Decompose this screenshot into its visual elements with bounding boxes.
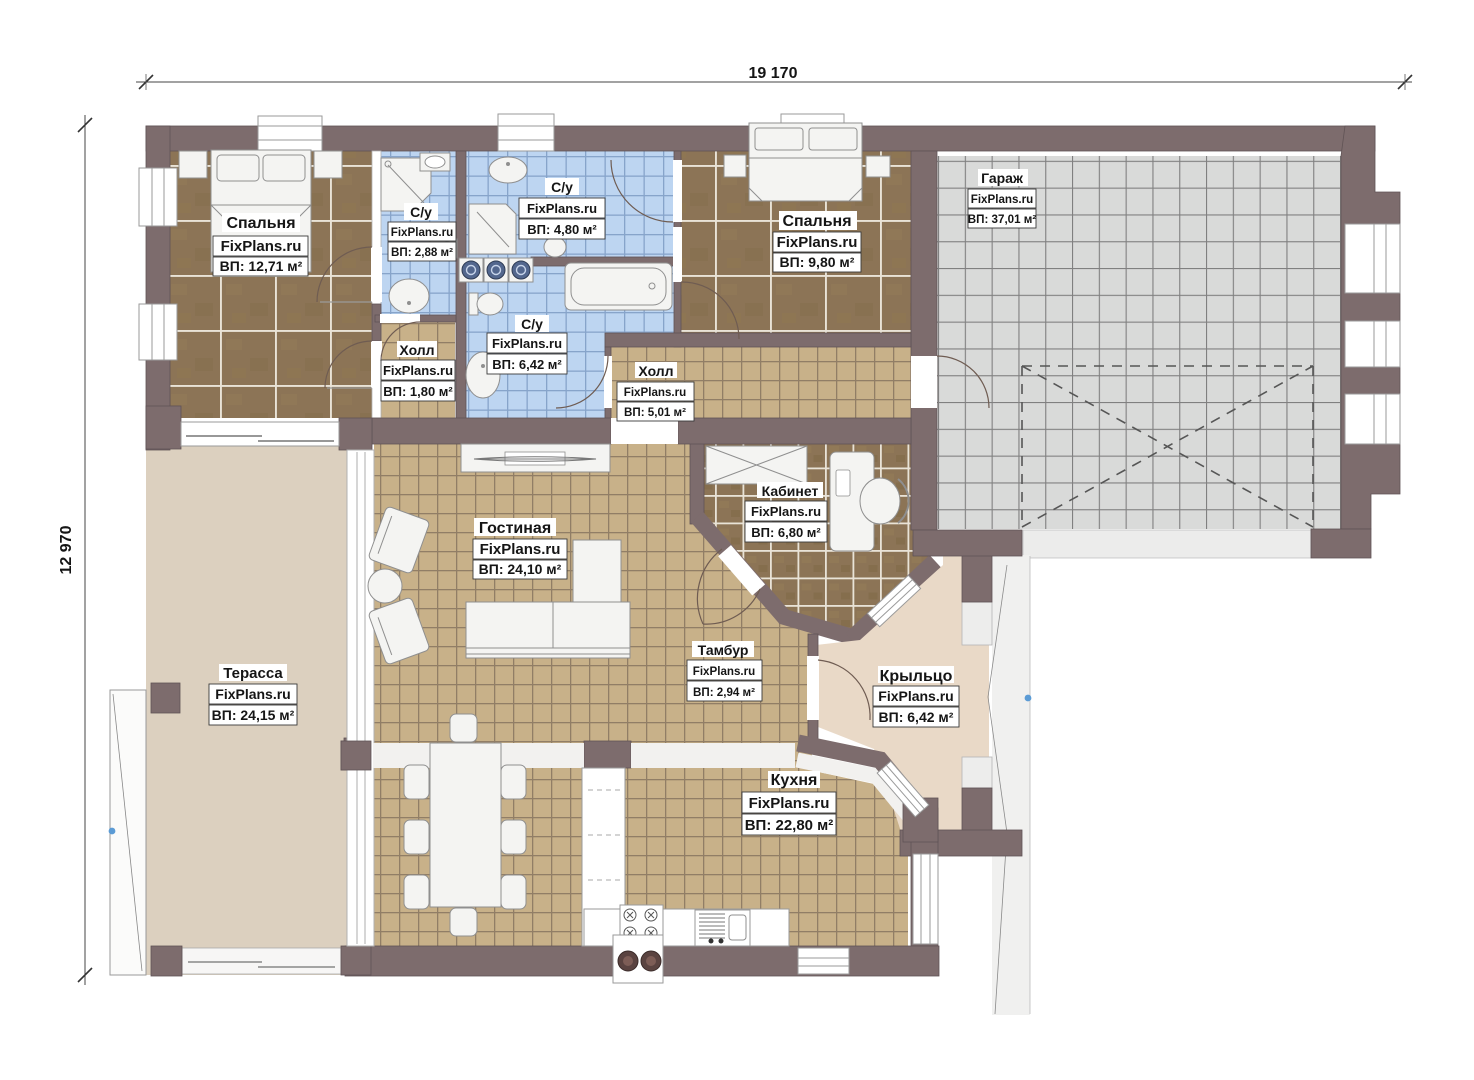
svg-text:FixPlans.ru: FixPlans.ru	[971, 193, 1034, 206]
svg-text:ВП: 1,80 м²: ВП: 1,80 м²	[383, 384, 453, 399]
svg-text:ВП: 9,80 м²: ВП: 9,80 м²	[780, 254, 855, 270]
svg-text:ВП: 24,15 м²: ВП: 24,15 м²	[212, 707, 295, 723]
svg-text:FixPlans.ru: FixPlans.ru	[492, 336, 562, 351]
svg-text:FixPlans.ru: FixPlans.ru	[221, 238, 302, 255]
svg-text:ВП: 6,42 м²: ВП: 6,42 м²	[879, 709, 954, 725]
svg-text:12 970: 12 970	[58, 525, 75, 574]
svg-text:FixPlans.ru: FixPlans.ru	[693, 665, 756, 678]
svg-text:Терасса: Терасса	[223, 665, 283, 682]
svg-text:Крыльцо: Крыльцо	[880, 668, 953, 685]
svg-text:FixPlans.ru: FixPlans.ru	[391, 226, 454, 239]
svg-text:Холл: Холл	[399, 342, 434, 358]
svg-text:ВП: 2,94 м²: ВП: 2,94 м²	[693, 686, 755, 699]
svg-text:FixPlans.ru: FixPlans.ru	[383, 363, 453, 378]
svg-text:С/у: С/у	[551, 179, 573, 195]
svg-text:Гостиная: Гостиная	[479, 520, 551, 537]
svg-text:ВП: 2,88 м²: ВП: 2,88 м²	[391, 246, 453, 259]
svg-text:ВП: 6,80 м²: ВП: 6,80 м²	[751, 525, 821, 540]
svg-text:Холл: Холл	[638, 363, 673, 379]
svg-text:ВП: 22,80 м²: ВП: 22,80 м²	[745, 817, 834, 834]
svg-text:FixPlans.ru: FixPlans.ru	[624, 386, 687, 399]
svg-text:Гараж: Гараж	[981, 170, 1024, 186]
svg-text:FixPlans.ru: FixPlans.ru	[215, 686, 290, 702]
svg-text:FixPlans.ru: FixPlans.ru	[777, 234, 858, 251]
svg-text:Спальня: Спальня	[782, 213, 851, 230]
svg-text:19 170: 19 170	[749, 65, 798, 82]
svg-text:С/у: С/у	[410, 204, 432, 220]
svg-text:FixPlans.ru: FixPlans.ru	[878, 688, 953, 704]
svg-text:FixPlans.ru: FixPlans.ru	[480, 541, 561, 558]
svg-text:FixPlans.ru: FixPlans.ru	[527, 201, 597, 216]
svg-text:Кабинет: Кабинет	[762, 483, 819, 499]
svg-text:ВП: 24,10 м²: ВП: 24,10 м²	[479, 561, 562, 577]
svg-text:ВП: 37,01 м²: ВП: 37,01 м²	[968, 213, 1037, 226]
svg-text:ВП: 12,71 м²: ВП: 12,71 м²	[220, 258, 303, 274]
svg-text:Кухня: Кухня	[771, 772, 818, 789]
svg-text:FixPlans.ru: FixPlans.ru	[749, 795, 830, 812]
svg-text:ВП: 6,42 м²: ВП: 6,42 м²	[492, 357, 562, 372]
svg-text:Спальня: Спальня	[226, 215, 295, 232]
svg-text:FixPlans.ru: FixPlans.ru	[751, 504, 821, 519]
svg-text:ВП: 5,01 м²: ВП: 5,01 м²	[624, 406, 686, 419]
svg-text:Тамбур: Тамбур	[698, 642, 749, 658]
svg-text:С/у: С/у	[521, 316, 543, 332]
svg-text:ВП: 4,80 м²: ВП: 4,80 м²	[527, 222, 597, 237]
